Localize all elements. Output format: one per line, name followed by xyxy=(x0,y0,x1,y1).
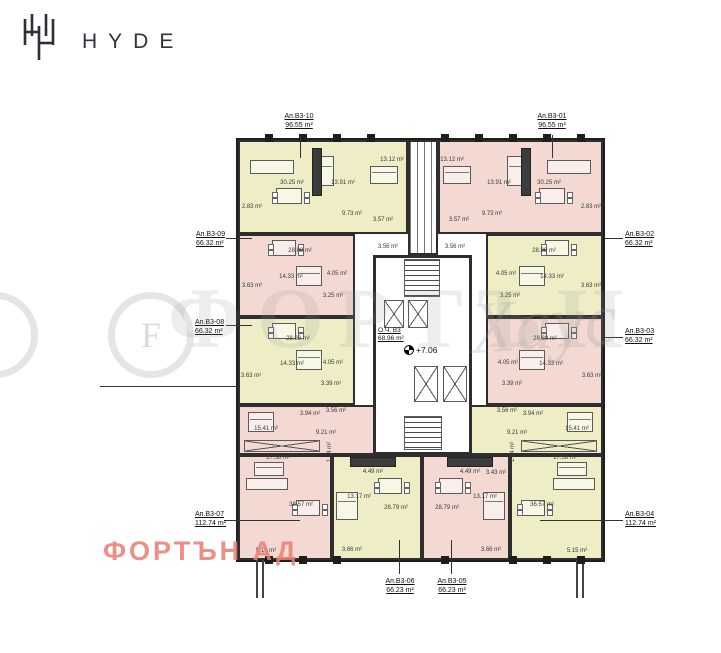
furniture-bed xyxy=(443,166,471,184)
apartment-block-shaft-top xyxy=(408,140,438,255)
room-area-label: 9.21 m² xyxy=(507,430,527,436)
company-name: ФОРТЪН АД xyxy=(103,536,298,567)
furniture-sofa xyxy=(250,160,294,174)
furniture-counter xyxy=(447,457,493,467)
leader-line xyxy=(226,325,252,326)
room-area-label: 14.33 m² xyxy=(280,361,304,367)
wall-pilaster xyxy=(265,134,273,142)
apartment-callout: Ап.B3-0566.23 m² xyxy=(437,577,466,595)
room-area-label: 13.12 m² xyxy=(380,157,404,163)
room-area-label: 28.79 m² xyxy=(384,505,408,511)
furniture-bed xyxy=(519,350,545,370)
room-area-label: 3.94 m² xyxy=(300,411,320,417)
room-area-label: 38.57 m² xyxy=(289,502,313,508)
apartment-area: 66.32 m² xyxy=(196,239,225,248)
room-area-label: 13.91 m² xyxy=(487,180,511,186)
furniture-table xyxy=(539,188,565,204)
furniture-bed xyxy=(370,166,398,184)
apartment-id: Ап.B3-09 xyxy=(196,230,225,239)
stairs-bottom-icon xyxy=(404,416,442,450)
furniture-bed xyxy=(557,462,587,476)
room-area-label: 13.91 m² xyxy=(331,180,355,186)
room-area-label: 3.66 m² xyxy=(342,547,362,553)
room-area-label: 3.63 m² xyxy=(242,283,262,289)
leader-line xyxy=(399,540,400,574)
room-area-label: 1.14 m² xyxy=(510,442,516,462)
hyde-logo-icon xyxy=(18,12,60,67)
apartment-callout: Ап.B3-04112.74 m² xyxy=(625,510,656,528)
wall-pilaster xyxy=(367,134,375,142)
room-area-label: 4.05 m² xyxy=(496,271,516,277)
room-area-label: 13.12 m² xyxy=(440,157,464,163)
room-area-label: 3.43 m² xyxy=(486,470,506,476)
room-area-label: 9.21 m² xyxy=(316,430,336,436)
room-area-label: 3.25 m² xyxy=(500,293,520,299)
elevator-icon xyxy=(414,366,438,402)
room-area-label: 3.63 m² xyxy=(581,283,601,289)
leader-line xyxy=(604,238,623,239)
furniture-counter xyxy=(350,457,396,467)
apartment-id: Ап.B3-02 xyxy=(625,230,654,239)
room-area-label: 3.56 m² xyxy=(378,244,398,250)
apartment-id: Ап.B3-05 xyxy=(437,577,466,586)
room-area-label: 4.49 m² xyxy=(363,469,383,475)
room-area-label: 28.79 m² xyxy=(435,505,459,511)
room-area-label: 3.63 m² xyxy=(582,373,602,379)
furniture-wardrobe-x xyxy=(244,440,320,452)
room-area-label: 5.15 m² xyxy=(567,548,587,554)
leader-line xyxy=(540,520,623,521)
wall-pilaster xyxy=(299,556,307,564)
apartment-area: 112.74 m² xyxy=(625,519,656,528)
wall-pilaster xyxy=(577,134,585,142)
apartment-id: Ап.B3-03 xyxy=(625,327,654,336)
elevator-icon xyxy=(443,366,467,402)
room-area-label: 13.17 m² xyxy=(473,494,497,500)
level-marker: +7.06 xyxy=(404,345,438,355)
room-area-label: 4.49 m² xyxy=(460,469,480,475)
apartment-id: Ап.B3-04 xyxy=(625,510,656,519)
room-area-label: 9.73 m² xyxy=(482,211,502,217)
room-area-label: 14.33 m² xyxy=(540,274,564,280)
furniture-sofa xyxy=(553,478,595,490)
leader-line xyxy=(226,238,252,239)
apartment-callout: Ап.B3-07112.74 m² xyxy=(195,510,226,528)
wall-pilaster xyxy=(543,556,551,564)
level-compass-icon xyxy=(404,345,414,355)
room-area-label: 13.17 m² xyxy=(347,494,371,500)
wall-pilaster xyxy=(509,556,517,564)
room-area-label: 3.56 m² xyxy=(326,408,346,414)
room-area-label: 30.25 m² xyxy=(537,180,561,186)
apartment-id: Ап.B3-06 xyxy=(385,577,414,586)
room-area-label: 17.58 m² xyxy=(553,455,577,461)
room-area-label: 17.58 m² xyxy=(266,455,290,461)
wall-pilaster xyxy=(509,134,517,142)
apartment-id: Ап.B3-08 xyxy=(195,318,224,327)
apartment-area: 66.32 m² xyxy=(625,239,654,248)
room-area-label: 4.05 m² xyxy=(498,360,518,366)
furniture-bed xyxy=(296,350,322,370)
common-area-name: О.Ч. B3 xyxy=(378,327,404,335)
room-area-label: 3.56 m² xyxy=(497,408,517,414)
room-area-label: 3.39 m² xyxy=(502,381,522,387)
wall-pilaster xyxy=(577,556,585,564)
floorplan-page: HYDE 30.25 m²13.91 m²13.12 m²9.73 m²2.83… xyxy=(0,0,721,653)
room-area-label: 28.88 m² xyxy=(288,248,312,254)
apartment-callout: Ап.B3-0266.32 m² xyxy=(625,230,654,248)
wall-pilaster xyxy=(333,556,341,564)
room-area-label: 2.83 m² xyxy=(581,204,601,210)
apartment-callout: Ап.B3-0666.23 m² xyxy=(385,577,414,595)
apartment-area: 66.32 m² xyxy=(625,336,654,345)
room-area-label: 15.41 m² xyxy=(254,426,278,432)
furniture-wardrobe-x xyxy=(521,440,597,452)
room-area-label: 3.56 m² xyxy=(445,244,465,250)
apartment-callout: Ап.B3-0196.55 m² xyxy=(537,112,566,130)
column-stub xyxy=(576,560,584,598)
room-area-label: 28.88 m² xyxy=(286,336,310,342)
room-area-label: 14.33 m² xyxy=(539,361,563,367)
furniture-table xyxy=(378,478,402,494)
brand-title: HYDE xyxy=(82,30,184,54)
apartment-id: Ап.B3-01 xyxy=(537,112,566,121)
room-area-label: 4.05 m² xyxy=(323,360,343,366)
common-area-size: 68.96 m² xyxy=(378,335,404,343)
common-area-label: О.Ч. B3 68.96 m² xyxy=(378,327,404,344)
room-area-label: 36.57 m² xyxy=(530,502,554,508)
room-area-label: 9.73 m² xyxy=(342,211,362,217)
level-value: +7.06 xyxy=(416,345,438,355)
room-area-label: 4.05 m² xyxy=(327,271,347,277)
wall-pilaster xyxy=(543,134,551,142)
watermark-circle-icon xyxy=(0,292,38,378)
leader-line xyxy=(100,386,236,387)
leader-line xyxy=(224,520,300,521)
apartment-area: 66.23 m² xyxy=(437,586,466,595)
wall-pilaster xyxy=(475,134,483,142)
furniture-table xyxy=(276,188,302,204)
room-area-label: 3.39 m² xyxy=(321,381,341,387)
apartment-area: 66.23 m² xyxy=(385,586,414,595)
elevator-icon xyxy=(408,300,428,328)
leader-line xyxy=(451,540,452,574)
room-area-label: 28.88 m² xyxy=(532,248,556,254)
wall-pilaster xyxy=(441,134,449,142)
furniture-sofa xyxy=(547,160,591,174)
leader-line xyxy=(604,337,623,338)
apartment-area: 112.74 m² xyxy=(195,519,226,528)
apartment-area: 66.32 m² xyxy=(195,327,224,336)
apartment-callout: Ап.B3-0866.32 m² xyxy=(195,318,224,336)
room-area-label: 28.88 m² xyxy=(533,336,557,342)
apartment-id: Ап.B3-07 xyxy=(195,510,226,519)
room-area-label: 3.25 m² xyxy=(323,293,343,299)
leader-line xyxy=(552,135,553,158)
room-area-label: 2.83 m² xyxy=(242,204,262,210)
watermark-monogram-icon: F xyxy=(108,292,194,378)
room-area-label: 1.14 m² xyxy=(327,442,333,462)
furniture-bed xyxy=(254,462,284,476)
apartment-callout: Ап.B3-0366.32 m² xyxy=(625,327,654,345)
room-area-label: 3.66 m² xyxy=(481,547,501,553)
room-area-label: 3.57 m² xyxy=(449,217,469,223)
apartment-id: Ап.B3-10 xyxy=(284,112,313,121)
furniture-sofa xyxy=(246,478,288,490)
room-area-label: 3.94 m² xyxy=(523,411,543,417)
wall-pilaster xyxy=(333,134,341,142)
wall-pilaster xyxy=(441,556,449,564)
apartment-callout: Ап.B3-0966.32 m² xyxy=(196,230,225,248)
stairs-top-icon xyxy=(404,259,440,297)
furniture-table xyxy=(439,478,463,494)
room-area-label: 15.41 m² xyxy=(565,426,589,432)
leader-line xyxy=(300,135,301,158)
elevator-icon xyxy=(384,300,404,328)
furniture-counter xyxy=(521,148,531,196)
room-area-label: 30.25 m² xyxy=(280,180,304,186)
apartment-callout: Ап.B3-1096.55 m² xyxy=(284,112,313,130)
apartment-area: 96.55 m² xyxy=(537,121,566,130)
room-area-label: 14.33 m² xyxy=(279,274,303,280)
room-area-label: 3.57 m² xyxy=(373,217,393,223)
furniture-counter xyxy=(312,148,322,196)
apartment-area: 96.55 m² xyxy=(284,121,313,130)
room-area-label: 3.63 m² xyxy=(241,373,261,379)
